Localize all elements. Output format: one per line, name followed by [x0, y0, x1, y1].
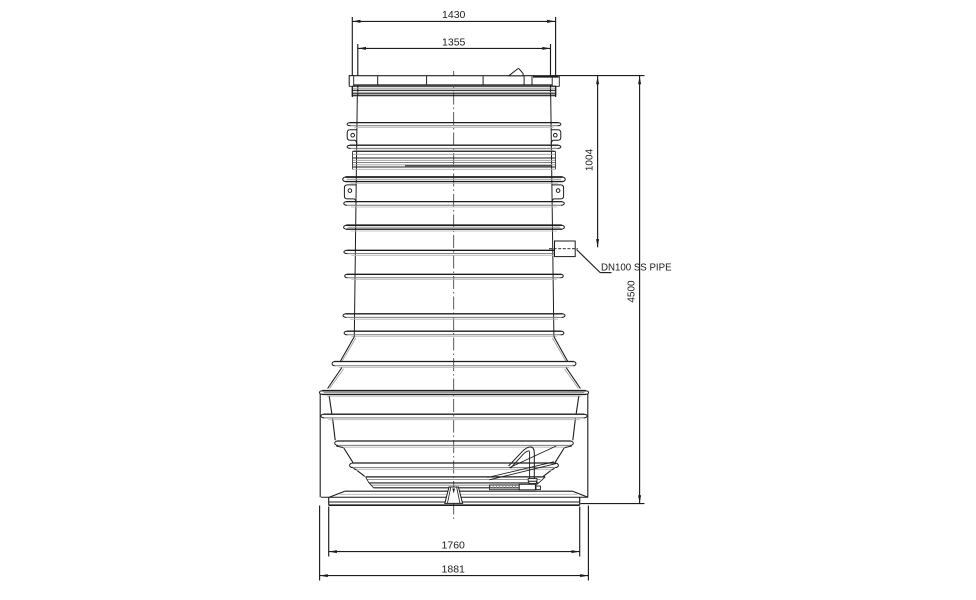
- svg-text:1881: 1881: [442, 564, 466, 576]
- svg-text:DN100 SS PIPE: DN100 SS PIPE: [601, 263, 672, 274]
- svg-text:1355: 1355: [442, 36, 466, 48]
- svg-text:1004: 1004: [585, 148, 596, 171]
- svg-text:1760: 1760: [442, 540, 466, 552]
- svg-text:4500: 4500: [627, 280, 638, 303]
- svg-text:1430: 1430: [442, 9, 466, 21]
